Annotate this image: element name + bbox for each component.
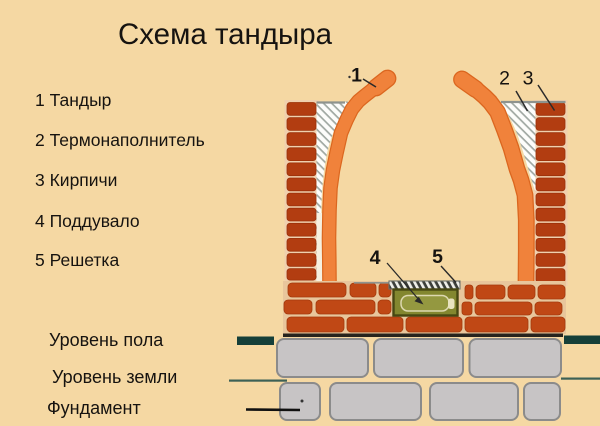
svg-text:2 Термонаполнитель: 2 Термонаполнитель <box>35 130 205 150</box>
svg-text:4: 4 <box>370 247 381 269</box>
svg-text:5 Решетка: 5 Решетка <box>35 250 119 270</box>
svg-text:Уровень земли: Уровень земли <box>52 367 177 387</box>
svg-text:Схема тандыра: Схема тандыра <box>118 18 333 51</box>
svg-text:1 Тандыр: 1 Тандыр <box>35 90 111 110</box>
svg-text:4 Поддувало: 4 Поддувало <box>35 211 140 231</box>
svg-text:5: 5 <box>432 246 443 268</box>
svg-text:2: 2 <box>499 68 510 90</box>
svg-text:Фундамент: Фундамент <box>47 398 141 418</box>
svg-text:3: 3 <box>523 68 534 90</box>
svg-text:3 Кирпичи: 3 Кирпичи <box>35 170 117 190</box>
svg-text:1: 1 <box>351 65 362 87</box>
svg-text:Уровень пола: Уровень пола <box>49 330 164 350</box>
